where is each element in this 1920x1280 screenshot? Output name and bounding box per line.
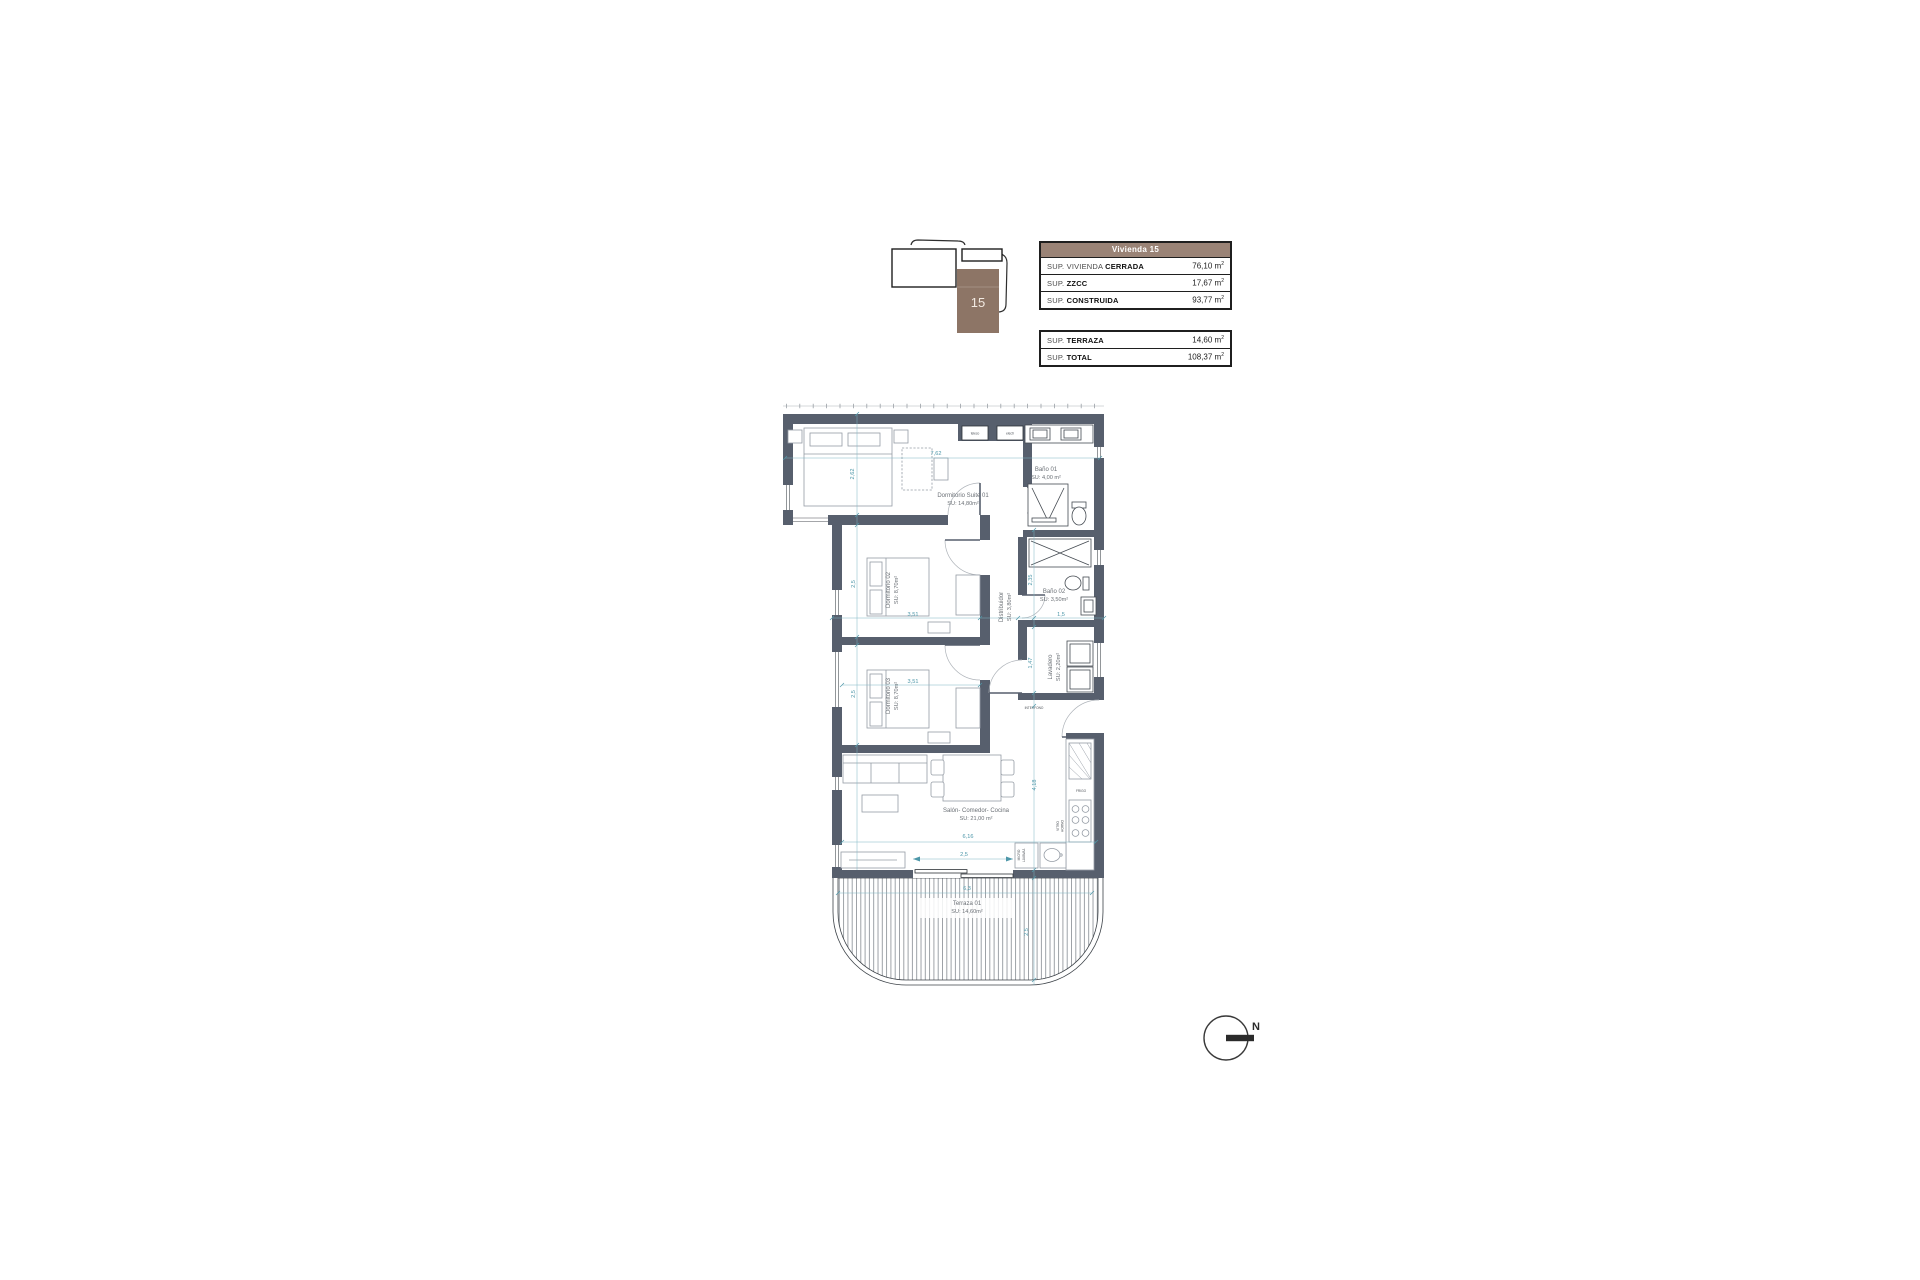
dim-dorm2-width: 3,51	[908, 612, 919, 618]
door-suite	[948, 483, 980, 515]
pillow	[870, 562, 882, 586]
window	[1094, 447, 1104, 458]
window	[793, 515, 828, 525]
dim-dorm2-depth: 2,5	[851, 580, 857, 588]
dining-table	[931, 755, 1014, 801]
window	[832, 652, 842, 707]
room-area-distribuidor: SU: 3,80m²	[1007, 593, 1013, 621]
hob	[1069, 800, 1091, 842]
dim-terraza-depth: 2,5	[1024, 928, 1030, 936]
door-entry	[1062, 700, 1099, 737]
fridge	[1069, 743, 1091, 779]
desk	[934, 458, 948, 480]
pillow	[848, 433, 880, 446]
table-row: SUP. ZZCC 17,67 m2	[1041, 275, 1230, 292]
dim-dorm3-width: 3,51	[908, 679, 919, 685]
pillow	[870, 674, 882, 698]
room-label-dorm3: Dormitorio 03	[886, 677, 892, 714]
room-label-dorm2: Dormitorio 02	[886, 571, 892, 608]
dim-salon-opening: 2,5	[960, 852, 968, 858]
table-row-value: 93,77 m2	[1192, 295, 1224, 305]
terrace	[833, 878, 1103, 985]
kitchen-sink	[1040, 843, 1066, 868]
north-arrow-bar	[1226, 1035, 1254, 1041]
key-plan: 15	[885, 225, 1020, 345]
room-label-terraza: Terraza 01	[953, 901, 982, 907]
room-label-lavadero: Lavadero	[1048, 654, 1054, 680]
window	[832, 590, 842, 615]
room-label-suite: Dormitorio Suite 01	[937, 493, 989, 499]
table-row: SUP. CONSTRUIDA 93,77 m2	[1041, 292, 1230, 308]
fixtures-bathroom-02	[1029, 539, 1096, 615]
toilet	[1065, 576, 1089, 590]
key-plan-building-block	[892, 249, 956, 287]
dim-bano2-width: 1,5	[1057, 612, 1065, 618]
fixtures-laundry	[1067, 641, 1093, 692]
pillow	[870, 702, 882, 726]
table-row-value: 14,60 m2	[1192, 335, 1224, 345]
room-label-bano2: Baño 02	[1043, 589, 1066, 595]
bench	[928, 732, 950, 743]
chair	[931, 760, 944, 775]
table-row-label: SUP. TOTAL	[1047, 353, 1092, 362]
room-area-suite: SU: 14,80m²	[947, 501, 979, 507]
room-area-dorm3: SU: 8,70m²	[894, 682, 900, 710]
micro-label: MICRO	[1017, 849, 1021, 860]
chair	[931, 782, 944, 797]
vitro-label: VITRO	[1056, 821, 1060, 831]
terrace-decking	[838, 878, 1098, 980]
table-row-value: 17,67 m2	[1192, 278, 1224, 288]
room-area-salon: SU: 21,00 m²	[960, 816, 993, 822]
closet-electr-label: electr	[1006, 432, 1015, 436]
dim-lavadero-depth: 1,47	[1028, 658, 1034, 669]
toilet	[1072, 502, 1086, 525]
room-area-bano2: SU: 3,50m²	[1040, 597, 1068, 603]
lavavajillas-label: LAVAVAJ.	[1022, 848, 1026, 862]
furniture-living	[841, 739, 1094, 870]
north-arrow: N	[1195, 1008, 1295, 1068]
dim-suite-width: 7,62	[931, 451, 942, 457]
room-area-dorm2: SU: 8,70m²	[894, 576, 900, 604]
room-label-salon: Salón- Comedor- Cocina	[943, 808, 1010, 814]
dim-terraza-width: 6,3	[963, 886, 971, 892]
window	[832, 777, 842, 790]
key-plan-building-block-small	[962, 249, 1002, 261]
washbasin-cabinet	[1081, 597, 1096, 615]
area-table-header: Vivienda 15	[1041, 243, 1230, 258]
table-row-label: SUP. TERRAZA	[1047, 336, 1104, 345]
door-bedroom-02	[945, 540, 980, 575]
table-row: SUP. VIVIENDA CERRADA 76,10 m2	[1041, 258, 1230, 275]
nightstand	[894, 430, 908, 443]
room-label-bano1: Baño 01	[1035, 467, 1058, 473]
coffee-table	[862, 795, 898, 812]
pillow	[810, 433, 842, 446]
furniture-suite	[788, 428, 948, 506]
floor-plan: teleco electr	[770, 400, 1115, 1000]
sliding-door	[913, 870, 1013, 878]
room-area-lavadero: SU: 2,20m²	[1056, 653, 1062, 681]
chair	[1001, 782, 1014, 797]
north-label: N	[1252, 1021, 1260, 1033]
door-laundry	[989, 660, 1022, 693]
shower	[1029, 539, 1091, 567]
wardrobe-dashed	[902, 448, 932, 490]
window	[783, 485, 793, 510]
window	[832, 845, 842, 867]
pillow	[870, 590, 882, 614]
plan-sheet: 15 Vivienda 15 SUP. VIVIENDA CERRADA 76,…	[0, 0, 1920, 1280]
closet-teleco-label: teleco	[971, 432, 980, 436]
dim-suite-depth: 2,62	[850, 469, 856, 480]
furniture-bedroom-02	[867, 558, 980, 633]
fridge-label: FRIGO	[1076, 789, 1087, 793]
table-row-label: SUP. VIVIENDA CERRADA	[1047, 262, 1144, 271]
interfono-label: INTERFONO	[1025, 706, 1044, 710]
chair	[1001, 760, 1014, 775]
table-row: SUP. TOTAL 108,37 m2	[1041, 349, 1230, 365]
area-table-main: Vivienda 15 SUP. VIVIENDA CERRADA 76,10 …	[1039, 241, 1232, 310]
key-plan-unit-number: 15	[971, 295, 985, 310]
window	[1094, 550, 1104, 565]
area-table-secondary: SUP. TERRAZA 14,60 m2 SUP. TOTAL 108,37 …	[1039, 330, 1232, 367]
dim-salon-depth: 4,18	[1032, 780, 1038, 791]
dim-bano2-depth: 2,35	[1028, 575, 1034, 586]
room-area-bano1: SU: 4,00 m²	[1031, 475, 1061, 481]
table-row-value: 76,10 m2	[1192, 261, 1224, 271]
room-area-terraza: SU: 14,60m²	[951, 909, 983, 915]
table-row-value: 108,37 m2	[1188, 352, 1224, 362]
table-row-label: SUP. ZZCC	[1047, 279, 1087, 288]
window	[1094, 643, 1104, 677]
sofa	[843, 755, 927, 783]
wardrobe	[956, 688, 980, 728]
table-row-label: SUP. CONSTRUIDA	[1047, 296, 1119, 305]
nightstand	[788, 430, 802, 443]
bench	[928, 622, 950, 633]
wardrobe	[956, 575, 980, 615]
room-label-distribuidor: Distribuidor	[999, 592, 1005, 622]
kitchen	[1015, 739, 1094, 870]
shower	[1028, 484, 1068, 526]
dim-dorm3-depth: 2,5	[851, 690, 857, 698]
horno-label: HORNO	[1061, 820, 1065, 832]
door-bedroom-03	[945, 645, 980, 680]
furniture-bedroom-03	[867, 670, 980, 743]
table-row: SUP. TERRAZA 14,60 m2	[1041, 332, 1230, 349]
dim-salon-width: 6,16	[963, 834, 974, 840]
